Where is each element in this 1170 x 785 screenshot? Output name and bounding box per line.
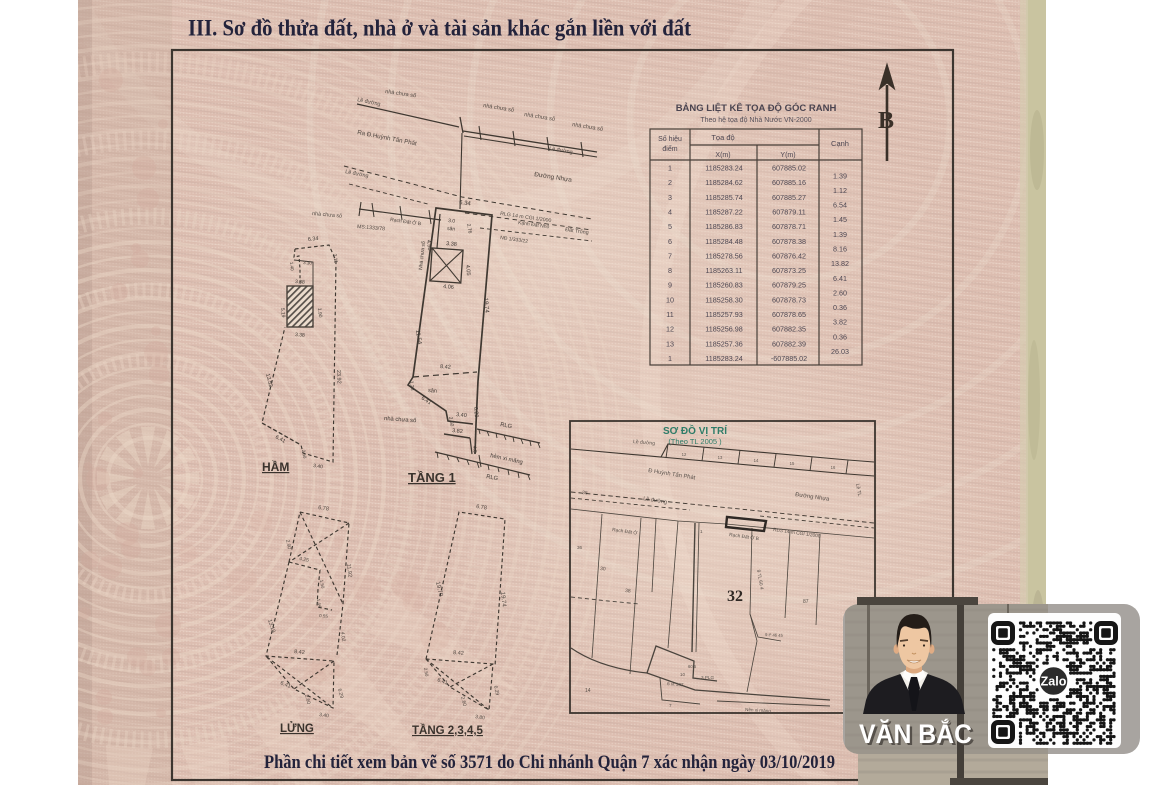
svg-text:607878.38: 607878.38 (772, 237, 806, 246)
svg-text:10: 10 (680, 672, 685, 677)
svg-text:14: 14 (585, 688, 591, 694)
svg-text:III. Sơ đồ thửa đất, nhà ở và: III. Sơ đồ thửa đất, nhà ở và tài sản kh… (188, 16, 691, 42)
svg-text:1.40: 1.40 (289, 262, 295, 272)
svg-text:607882.39: 607882.39 (772, 339, 806, 348)
svg-text:6.34: 6.34 (308, 236, 319, 243)
svg-text:HẦM: HẦM (262, 459, 289, 474)
svg-text:Tọa độ: Tọa độ (711, 133, 734, 142)
svg-text:4.06: 4.06 (443, 284, 454, 291)
svg-text:607876.42: 607876.42 (772, 251, 806, 260)
svg-text:Theo hệ tọa độ Nhà Nước VN-200: Theo hệ tọa độ Nhà Nước VN-2000 (700, 117, 811, 124)
svg-text:BẢNG LIỆT KÊ TỌA ĐỘ GÓC RANH: BẢNG LIỆT KÊ TỌA ĐỘ GÓC RANH (676, 102, 837, 114)
svg-text:5: 5 (668, 222, 672, 231)
svg-text:15: 15 (790, 461, 795, 466)
svg-text:607885.27: 607885.27 (772, 193, 806, 202)
svg-text:607878.71: 607878.71 (772, 222, 806, 231)
svg-text:4: 4 (668, 208, 672, 217)
svg-text:30: 30 (600, 566, 606, 572)
svg-text:607879.11: 607879.11 (772, 208, 805, 217)
svg-text:5.19: 5.19 (279, 308, 286, 319)
svg-text:14: 14 (754, 458, 759, 463)
svg-text:0.36: 0.36 (833, 332, 847, 341)
svg-text:9: 9 (668, 281, 672, 290)
svg-text:1.28: 1.28 (408, 381, 415, 392)
svg-text:Phần chi tiết xem bản vẽ số 35: Phần chi tiết xem bản vẽ số 3571 do Chi … (264, 753, 835, 773)
svg-text:6.54: 6.54 (833, 201, 847, 210)
svg-text:11: 11 (666, 310, 673, 319)
svg-text:1185283.24: 1185283.24 (705, 354, 742, 363)
svg-text:3.38: 3.38 (295, 279, 305, 286)
svg-text:36: 36 (577, 545, 583, 550)
svg-text:TẦNG 2,3,4,5: TẦNG 2,3,4,5 (412, 724, 484, 737)
svg-text:1.12: 1.12 (833, 186, 847, 195)
svg-text:3.38: 3.38 (446, 241, 457, 248)
svg-text:23.92: 23.92 (335, 370, 342, 384)
svg-text:B: B (878, 108, 894, 134)
svg-text:Cạnh: Cạnh (831, 139, 849, 148)
svg-text:1185258.30: 1185258.30 (705, 295, 742, 304)
svg-text:6.29: 6.29 (472, 407, 479, 418)
svg-text:3.30: 3.30 (303, 260, 313, 266)
svg-text:60.5: 60.5 (688, 664, 697, 669)
svg-text:1185263.11: 1185263.11 (706, 266, 743, 275)
svg-text:3.0: 3.0 (448, 218, 456, 225)
svg-text:3.82: 3.82 (833, 318, 847, 327)
svg-text:13: 13 (666, 339, 674, 348)
svg-text:607882.35: 607882.35 (772, 325, 806, 334)
svg-text:38: 38 (625, 588, 631, 594)
svg-text:8.42: 8.42 (440, 364, 451, 371)
svg-text:3.82: 3.82 (452, 428, 463, 435)
svg-text:26.03: 26.03 (831, 347, 849, 356)
svg-text:8: 8 (668, 266, 672, 275)
svg-text:1: 1 (668, 164, 672, 173)
svg-text:VĂN BẮC: VĂN BẮC (859, 718, 972, 749)
svg-text:X(m): X(m) (715, 152, 730, 159)
svg-text:1185284.48: 1185284.48 (705, 237, 742, 246)
svg-text:TẦNG 1: TẦNG 1 (408, 470, 456, 485)
svg-text:điểm: điểm (662, 145, 677, 153)
svg-text:1185285.74: 1185285.74 (705, 193, 742, 202)
svg-text:1185257.36: 1185257.36 (705, 339, 742, 348)
svg-text:607878.73: 607878.73 (772, 295, 806, 304)
svg-text:1.39: 1.39 (833, 230, 847, 239)
svg-text:6.41: 6.41 (833, 274, 847, 283)
svg-text:607873.25: 607873.25 (772, 266, 806, 275)
svg-text:1: 1 (700, 529, 703, 534)
svg-text:3.38: 3.38 (295, 332, 305, 339)
svg-text:2: 2 (668, 178, 672, 187)
svg-text:7: 7 (669, 703, 672, 708)
svg-text:8.16: 8.16 (833, 245, 847, 254)
svg-text:1185257.93: 1185257.93 (705, 310, 742, 319)
svg-text:Y(m): Y(m) (780, 152, 795, 159)
svg-text:1185287.22: 1185287.22 (705, 208, 742, 217)
svg-text:32: 32 (727, 588, 743, 605)
svg-text:0.36: 0.36 (833, 303, 847, 312)
svg-text:607879.25: 607879.25 (772, 281, 806, 290)
svg-text:9 tº 46 45: 9 tº 46 45 (765, 632, 784, 638)
svg-text:Số hiệu: Số hiệu (658, 134, 682, 143)
svg-text:sân: sân (447, 226, 456, 233)
svg-text:SƠ ĐỒ VỊ TRÍ: SƠ ĐỒ VỊ TRÍ (663, 424, 727, 437)
svg-text:12: 12 (682, 452, 687, 457)
svg-text:4.05: 4.05 (464, 265, 471, 276)
svg-text:36: 36 (582, 490, 588, 496)
svg-text:1185256.98: 1185256.98 (705, 325, 742, 334)
svg-text:2.60: 2.60 (833, 288, 847, 297)
svg-text:-607885.02: -607885.02 (771, 354, 807, 363)
svg-text:12: 12 (666, 325, 674, 334)
svg-text:3: 3 (668, 193, 672, 202)
svg-text:1185260.83: 1185260.83 (705, 281, 742, 290)
svg-text:sân: sân (428, 388, 437, 395)
svg-text:8.42: 8.42 (453, 650, 464, 657)
svg-text:6: 6 (668, 237, 672, 246)
svg-text:Zalo: Zalo (1041, 675, 1067, 689)
svg-text:607878.65: 607878.65 (772, 310, 806, 319)
svg-text:4.0: 4.0 (471, 446, 478, 454)
svg-text:13: 13 (718, 455, 723, 460)
svg-text:607885.02: 607885.02 (772, 164, 806, 173)
svg-text:3.40: 3.40 (456, 412, 467, 419)
svg-text:4.02: 4.02 (339, 632, 346, 643)
svg-text:16: 16 (831, 465, 836, 470)
svg-text:8.42: 8.42 (294, 649, 305, 656)
svg-text:1185283.24: 1185283.24 (705, 164, 742, 173)
svg-text:1185278.56: 1185278.56 (705, 251, 742, 260)
svg-text:1: 1 (668, 354, 672, 363)
svg-text:LỬNG: LỬNG (280, 722, 314, 735)
svg-text:13.82: 13.82 (831, 259, 849, 268)
svg-text:1185284.62: 1185284.62 (705, 178, 742, 187)
svg-text:87: 87 (803, 599, 809, 605)
svg-text:1185286.83: 1185286.83 (705, 222, 742, 231)
svg-text:10: 10 (666, 295, 674, 304)
svg-text:1.39: 1.39 (833, 171, 847, 180)
svg-text:1.45: 1.45 (833, 215, 847, 224)
svg-text:607885.16: 607885.16 (772, 178, 806, 187)
svg-text:7: 7 (668, 251, 672, 260)
svg-text:3 PLG: 3 PLG (701, 675, 714, 680)
svg-text:1.90: 1.90 (316, 308, 323, 319)
svg-text:0.55: 0.55 (319, 613, 329, 619)
